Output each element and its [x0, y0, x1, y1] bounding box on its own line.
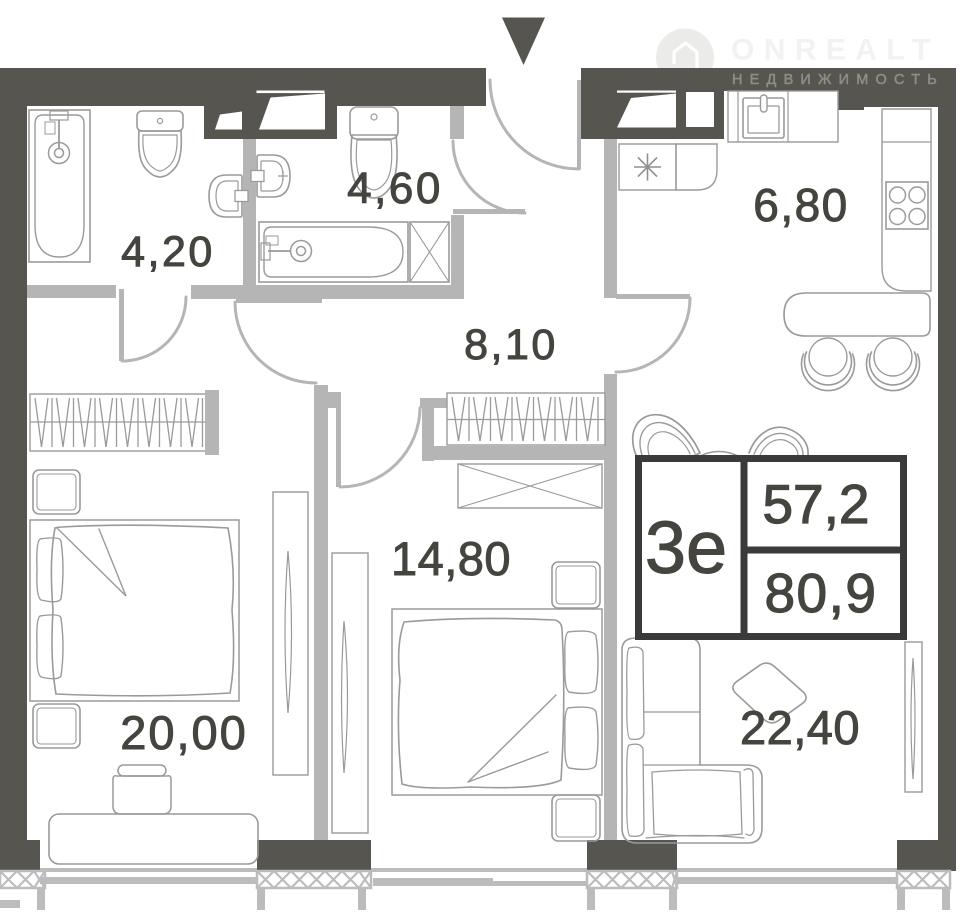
svg-text:6,80: 6,80	[753, 179, 849, 231]
svg-text:НЕДВИЖИМОСТЬ: НЕДВИЖИМОСТЬ	[732, 72, 944, 88]
svg-text:57,2: 57,2	[762, 473, 869, 535]
svg-text:14,80: 14,80	[391, 532, 511, 585]
svg-text:20,00: 20,00	[120, 706, 248, 759]
svg-text:8,10: 8,10	[464, 321, 558, 369]
svg-text:80,9: 80,9	[764, 562, 877, 624]
svg-text:3е: 3е	[645, 506, 727, 589]
svg-text:4,20: 4,20	[121, 228, 215, 276]
svg-text:4,60: 4,60	[347, 164, 443, 213]
svg-text:ONREALT: ONREALT	[731, 34, 940, 67]
svg-text:22,40: 22,40	[740, 701, 860, 754]
